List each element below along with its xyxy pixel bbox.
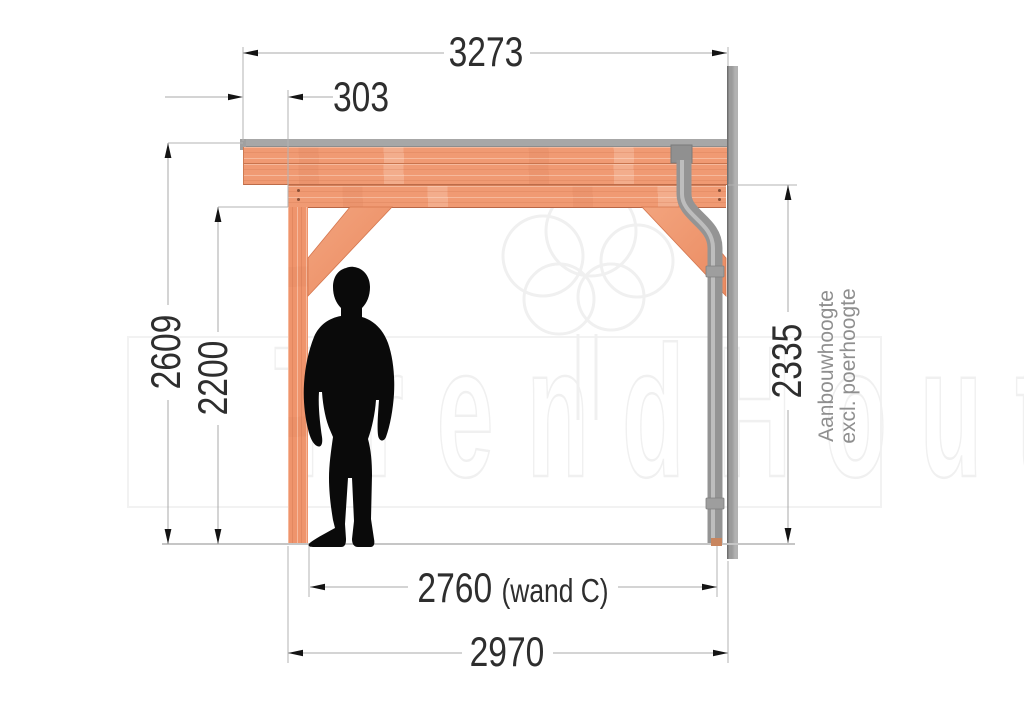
downpipe-coupling [706, 266, 724, 277]
dim-label-passage-height: 2200 [192, 314, 234, 442]
wall-height-note: Aanbouwhoogte excl. poerhoogte [816, 236, 860, 496]
dim-inner-span-note: (wand C) [501, 572, 608, 609]
downpipe-outlet [711, 538, 722, 546]
dim-inner-span-value: 2760 [417, 564, 492, 611]
dim-label-roof-overhang: 303 [297, 76, 425, 118]
dim-label-total-height: 2609 [145, 288, 187, 416]
wall-height-note-line1: Aanbouwhoogte [816, 236, 838, 496]
dim-label-inner-span: 2760 (wand C) [393, 567, 633, 612]
dim-label-wall-attach-height: 2335 [766, 297, 808, 425]
human-figure [304, 267, 395, 547]
veranda-side-elevation-drawing: TrendHout [0, 0, 1024, 704]
downpipe [682, 160, 724, 546]
dim-label-outer-span: 2970 [443, 631, 571, 673]
dim-label-roof-width: 3273 [422, 31, 550, 73]
downpipe-coupling [706, 498, 724, 509]
wall-height-note-line2: excl. poerhoogte [838, 236, 860, 496]
